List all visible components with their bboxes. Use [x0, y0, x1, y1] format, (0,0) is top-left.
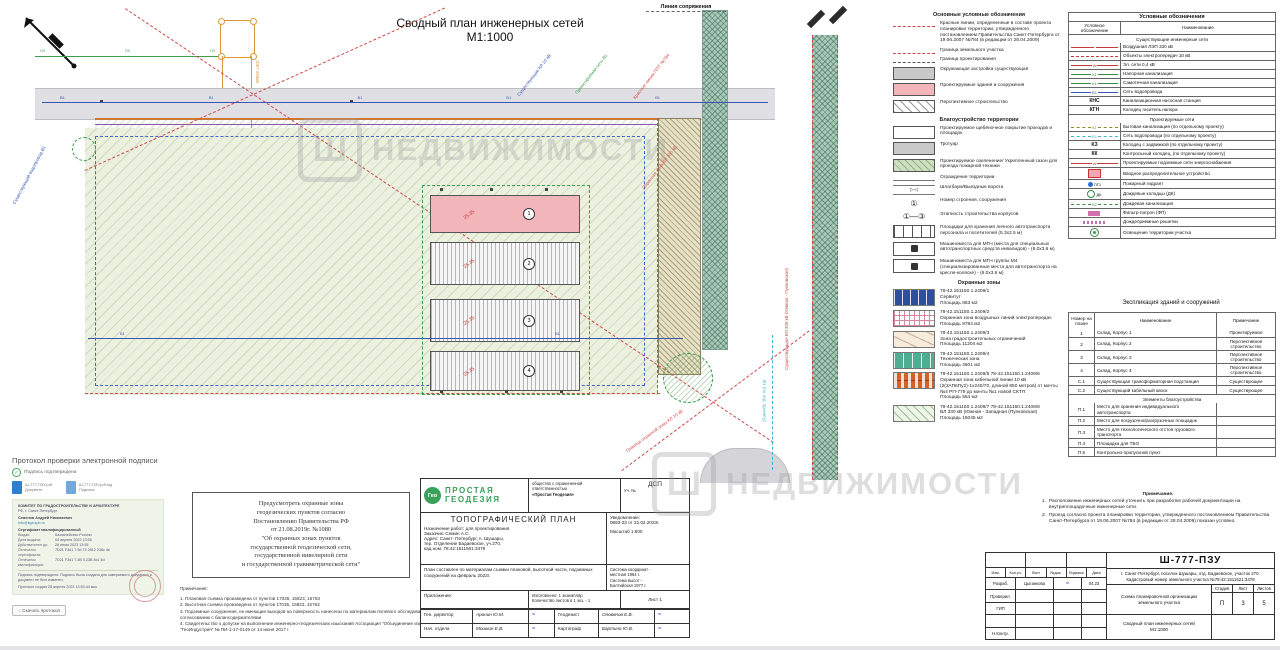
legend-swatch-icon [893, 100, 935, 113]
symbols-row: В1 Сеть водопровода [1069, 87, 1275, 96]
legend-item-label: Перспективное строительство [940, 100, 1065, 106]
symbols-section: Существующие инженерные сети [1069, 35, 1275, 43]
legend-item-label: Проектируемые здания и сооружения [940, 83, 1065, 89]
utility-marker-icon [440, 188, 443, 191]
signature-row: Нач. отдела Мошкин Е.В. ≈ Картограф Барт… [421, 623, 689, 637]
survey-notes: Примечания: 1. Плановая съемка произведе… [180, 586, 448, 633]
mid-water-line [88, 338, 683, 339]
red-line-vertical [657, 118, 658, 393]
symbols-row: Воздушная ЛЭП 330 кВ [1069, 43, 1275, 51]
signature-mark [1054, 603, 1082, 614]
powerline-corridor-strip [812, 35, 838, 480]
symbols-row: КНС Канализационная насосная станция [1069, 96, 1275, 105]
building-elevation-label: 25.35 [462, 258, 476, 270]
zone-swatch-icon [893, 289, 935, 306]
survey-note: 4. Свидетельство о допуске на выполнение… [180, 621, 448, 633]
legend-item: Красные линии, определенные в составе пр… [893, 21, 1065, 44]
cert-fields: Выдан: Казначейство России Дата выдачи: … [18, 533, 158, 568]
symbol-name: Самотечная канализация [1121, 79, 1275, 87]
download-icon: ↓ [18, 608, 20, 613]
utility-marker-icon [505, 390, 508, 393]
legend-zone-item: 78-42.151150.1.2409/4 Техническая зона П… [893, 352, 1065, 369]
symbols-row: КГН Колодец гаситель напора [1069, 105, 1275, 114]
company-org: общество с ограниченной ответственностью… [529, 479, 621, 512]
symbol-swatch-icon: В1 [1069, 132, 1121, 140]
name [1016, 590, 1054, 601]
signature-mark [1054, 628, 1082, 639]
row-note: Существующее [1217, 377, 1275, 385]
legend-swatch-icon [893, 83, 935, 96]
topo-block: ТОПОГРАФИЧЕСКИЙ ПЛАН Назначение работ: д… [421, 513, 607, 564]
symbol-swatch-icon [1069, 227, 1121, 238]
symbol-name: Бытовая канализация (по отдельному проек… [1121, 123, 1275, 131]
zone-label: 78-42.151150.1.2409/1 Сервитут Площадь 8… [940, 289, 1065, 306]
explication-row: П.3 Место для технологического отстоя гр… [1069, 425, 1275, 439]
line-label: В1 [358, 95, 363, 100]
explication-row: С.1 Существующая трансформаторная подста… [1069, 376, 1275, 385]
legend-item: Машиноместа для МГН группы М4 (специализ… [893, 259, 1065, 276]
building-footprint: 2 25.35 [430, 242, 580, 285]
sheet-label: Лист [1233, 585, 1254, 592]
symbol-name: Фильтр-патрон (ФП) [1121, 209, 1275, 217]
symbols-rows-projected: К1 Бытовая канализация (по отдельному пр… [1069, 123, 1275, 238]
revision-row: ГИП [986, 603, 1106, 615]
dsp-cell: ДСП Уч. № [621, 479, 689, 512]
right-notes: Примечание. 1. Расположение инженерных с… [1042, 492, 1274, 526]
zone-area: Площадь 11204 м2 [940, 342, 1065, 348]
symbol-name: Канализационная насосная станция [1121, 97, 1275, 105]
building-elevation-label: 25.35 [462, 209, 476, 221]
zone-label: 78-42.151150.1.2409/5 78-42.151150.1.240… [940, 372, 1065, 401]
certificate-box: КОМИТЕТ ПО ГРАДОСТРОИТЕЛЬСТВУ И АРХИТЕКТ… [12, 499, 164, 595]
esign-status-text: Подпись подтверждена [24, 470, 76, 475]
file-chip[interactable]: Ш-777-ПЗУ.pdfДокумент [12, 481, 52, 494]
survey-note: 3. Подземные сооружения, не имеющие выхо… [180, 609, 448, 621]
explication-row: П.5 Контрольно-пропускной пункт [1069, 447, 1275, 456]
legend-item: Проектируемое щебёночное покрытие проезд… [893, 126, 1065, 139]
round-stamp [129, 570, 161, 602]
stage-value: П [1212, 593, 1233, 614]
row-number: П.1 [1069, 403, 1095, 416]
revision-row: Разраб. Цыганкова ≈ 04.23 [986, 578, 1106, 590]
document-file-icon [12, 481, 22, 494]
date [1082, 628, 1106, 639]
zone-label: 78-42.151150.1.2409/7 78-42.151150.1.240… [940, 405, 1065, 422]
symbol-name: Дождевые колодцы (ДК) [1121, 189, 1275, 199]
title-block: Изм.Кол.уч.Лист№док.ПодписьДата Разраб. … [985, 552, 1275, 640]
line-label: В1 [120, 331, 125, 336]
survey-stamp: Гео ПРОСТАЯГЕОДЕЗИЯ общество с ограничен… [420, 478, 690, 638]
legend-item: Машиноместа для МГН (места для специальн… [893, 242, 1065, 256]
stage-table: Стадия Лист Листов П 3 5 [1212, 585, 1274, 614]
building-elevation-label: 25.35 [462, 366, 476, 378]
row-name: Место для хранения индивидуального автот… [1095, 403, 1217, 416]
cert-field-key: Отпечаток квалификации: [18, 558, 52, 568]
signature-row: Ген. директор Аронин Ю.М. ≈ Геодезист Ол… [421, 609, 689, 623]
legend-item-label: Ограждение территории [940, 175, 1065, 181]
power-pylon [220, 20, 255, 58]
symbols-row: КЗ Колодец с задвижкой (по отдельному пр… [1069, 140, 1275, 149]
symbol-swatch-icon: К1 [1069, 123, 1121, 131]
row-number: 4 [1069, 364, 1095, 376]
row-number: 1 [1069, 329, 1095, 337]
symbol-name: Объекты электропередач 10 кВ [1121, 52, 1275, 60]
cert-field: Отпечаток квалификации: 7D21 F3d1 7.4B 0… [18, 558, 158, 568]
signature-mark: ≈ [529, 624, 555, 637]
line-label: ЛЗ [210, 48, 215, 53]
legend-item-label: Окружающая застройка существующая [940, 67, 1065, 73]
signatures: Ген. директор Аронин Ю.М. ≈ Геодезист Ол… [421, 609, 689, 637]
projected-water-line [772, 335, 773, 470]
sheets-label: Листов [1254, 585, 1274, 592]
explication-title: Экспликация зданий и сооружений [1068, 300, 1274, 306]
row-note: Перспективное строительство [1217, 338, 1275, 350]
role: Проверил. [986, 590, 1016, 601]
mid-line-labels: В1В1 [120, 331, 560, 336]
row-note: Перспективное строительство [1217, 364, 1275, 376]
explication-row: П.4 Площадка для ТБО [1069, 438, 1275, 447]
role: ГИП [986, 603, 1016, 614]
revision-col-label: Подпись [1067, 568, 1087, 577]
legend-item-label: Граница земельного участка [940, 48, 1065, 54]
water-line-labels: В1В1В1В1В1 [60, 95, 660, 100]
symbols-row: КК Контрольный колодец, (по отдельному п… [1069, 149, 1275, 158]
legend-swatch-icon [893, 26, 935, 27]
symbol-name: Сеть водопровода [1121, 88, 1275, 96]
signature-mark [1054, 615, 1082, 626]
zone-swatch-icon [893, 310, 935, 327]
row-note: Существующее [1217, 386, 1275, 394]
symbol-swatch-icon: КЗ [1069, 141, 1121, 149]
zone-swatch-icon [893, 352, 935, 369]
symbol-name: Воздушная ЛЭП 330 кВ [1121, 43, 1275, 51]
topo-title: ТОПОГРАФИЧЕСКИЙ ПЛАН [424, 515, 603, 524]
file-chip[interactable]: Ш-777-ПЗУ.pdf.sigПодпись [66, 481, 112, 494]
explication-row: 4 Склад, Корпус 4 Перспективное строител… [1069, 363, 1275, 376]
revision-row: Проверил. [986, 590, 1106, 602]
utility-marker-icon [560, 390, 563, 393]
row-name: Контрольно-пропускной пункт [1095, 448, 1217, 456]
building-number-badge: 2 [523, 258, 535, 270]
customer-address: Адрес: Санкт- Петербург, п. Шушары, тер.… [424, 536, 603, 551]
symbol-name: Напорная канализация [1121, 70, 1275, 78]
explication-col-num: Номер на плане [1069, 313, 1095, 329]
signature-mark: ≈ [655, 610, 689, 623]
building: 4 25.35 [430, 351, 580, 391]
role [986, 615, 1016, 626]
explication-row: 2 Склад, Корпус 2 Перспективное строител… [1069, 337, 1275, 350]
legend-item-label: Граница проектирования [940, 57, 1065, 63]
row-note: Перспективное строительство [1217, 351, 1275, 363]
check-icon: ✓ [12, 468, 21, 477]
notice: Уведомление: 0893-23 от 22.02.2023г. [610, 515, 686, 525]
explication-rows: П.1 Место для хранения индивидуального а… [1069, 403, 1275, 456]
symbol-name: Вводное распределительное устройство [1121, 168, 1275, 179]
zone-label: 78-42.151150.1.2409/3 Зона градостроител… [940, 331, 1065, 348]
revision-grid: Изм.Кол.уч.Лист№док.ПодписьДата Разраб. … [986, 553, 1107, 639]
zone-area: Площадь 4601 м2 [940, 363, 1065, 369]
stage-label: Стадия [1212, 585, 1233, 592]
symbols-row: К1 Самотечная канализация [1069, 78, 1275, 87]
coordinate-system: Система координат - местная 1964 г. Сист… [607, 565, 689, 590]
row-note [1217, 426, 1275, 439]
line-label: В1 [60, 95, 65, 100]
line-label: В1 [655, 95, 660, 100]
symbol-swatch-icon [1069, 209, 1121, 217]
legend-item: Перспективное строительство [893, 100, 1065, 113]
building: 2 25.35 [430, 242, 580, 285]
explication-row: С.2 Существующий кабельный киоск Существ… [1069, 385, 1275, 394]
legend-swatch-icon [893, 142, 935, 155]
row-number: П.2 [1069, 417, 1095, 425]
road-turnaround [700, 448, 790, 483]
road [35, 88, 775, 120]
legend-item-label: Проектируемое щебёночное покрытие проезд… [940, 126, 1065, 138]
symbols-row: В1 Сеть водопровода (по отдельному проек… [1069, 131, 1275, 140]
zone-swatch-icon [893, 405, 935, 422]
legend-zone-item: 78-42.151150.1.2409/2 Охранная зона возд… [893, 310, 1065, 327]
symbols-table-title: Условные обозначения [1069, 13, 1275, 21]
row-name: Место для технологического отстоя грузов… [1095, 426, 1217, 439]
symbol-name: Эл. сети 0,4 кВ [1121, 61, 1275, 69]
symbols-row: Вводное распределительное устройство [1069, 167, 1275, 179]
cert-field-value: 7D21 F3d1 7.4B 0.23B 8c1 4d [55, 558, 105, 568]
revision-col-label: Кол.уч. [1006, 568, 1026, 577]
name [1016, 603, 1054, 614]
utility-marker-icon [440, 390, 443, 393]
symbol-swatch-icon: В1 [1069, 88, 1121, 96]
symbol-swatch-icon: ПГ1 [1069, 180, 1121, 188]
explication-col-note: Примечание [1217, 313, 1275, 329]
esign-panel: Протокол проверки электронной подписи ✓ … [12, 456, 184, 640]
symbol-swatch-icon [1069, 52, 1121, 60]
legend-item-label: Машиноместа для МГН (места для специальн… [940, 242, 1065, 254]
symbol-name: Колодец гаситель напора [1121, 106, 1275, 114]
zone-swatch-icon [893, 331, 935, 348]
geodesic-protection-note: Предусмотреть охранные зоны геодезически… [192, 492, 410, 578]
name: Цыганкова [1016, 578, 1054, 589]
legend-item-label: Машиноместа для МГН группы М4 (специализ… [940, 259, 1065, 276]
symbols-row: ПГ1 Пожарный гидрант [1069, 179, 1275, 188]
name [1016, 615, 1054, 626]
symbol-swatch-icon [1069, 218, 1121, 226]
row-name: Существующий кабельный киоск [1095, 386, 1217, 394]
water-line [42, 102, 768, 103]
attachment: Приложение: [421, 591, 529, 608]
zone-area: Площадь 8784 м2 [940, 322, 1065, 328]
legend-item: Проектируемые здания и сооружения [893, 83, 1065, 96]
sheet-value: 3 [1233, 593, 1254, 614]
symbol-swatch-icon: К1 [1069, 70, 1121, 78]
utility-marker-icon [545, 188, 548, 191]
legend-item: Граница земельного участка [893, 48, 1065, 54]
legend-item-label: Шлагбаум/Выездные ворота [940, 185, 1065, 191]
building-number-badge: 3 [523, 315, 535, 327]
row-note [1217, 403, 1275, 416]
row-name: Склад, Корпус 2 [1095, 338, 1217, 350]
esign-status: ✓ Подпись подтверждена [12, 468, 184, 477]
building-footprint: 4 25.35 [430, 351, 580, 391]
legend-item: Ограждение территории [893, 175, 1065, 181]
note-text: Проезд согласно проекта планировки терри… [1049, 513, 1274, 525]
symbol-swatch-icon: КНС [1069, 97, 1121, 105]
line-label: В1 [555, 331, 560, 336]
legend-item: Площадки для хранения личного автотрансп… [893, 225, 1065, 238]
row-name: Склад, Корпус 4 [1095, 364, 1217, 376]
composed-note: План составлен по материалам съемки план… [421, 565, 607, 590]
row-note [1217, 439, 1275, 447]
building: 1 25.35 [430, 195, 580, 233]
symbol-swatch-icon: ДК [1069, 189, 1121, 199]
symbol-name: Пожарный гидрант [1121, 180, 1275, 188]
name [1016, 628, 1054, 639]
symbols-row: К1 Бытовая канализация (по отдельному пр… [1069, 123, 1275, 131]
copies-made: Изготовлено: 1 экземпляр Количество лист… [529, 591, 621, 608]
sheet-title: Сводный план инженерных сетей М1:1000 [1107, 615, 1212, 639]
connection-strip [702, 10, 728, 350]
note-item: 1. Расположение инженерных сетей уточнит… [1042, 499, 1274, 511]
symbol-name: Дождеприемные решетки [1121, 218, 1275, 226]
power-line-label: ЛЭП 330кВ [255, 60, 260, 83]
revision-col-label: Изм. [986, 568, 1006, 577]
notice-block: Уведомление: 0893-23 от 22.02.2023г. Мас… [607, 513, 689, 564]
explication-row: П.1 Место для хранения индивидуального а… [1069, 403, 1275, 416]
legend-item: Окружающая застройка существующая [893, 67, 1065, 80]
signature-mark: ≈ [529, 610, 555, 623]
esign-title: Протокол проверки электронной подписи [12, 456, 184, 465]
zone-area: Площадь 16045 м2 [940, 416, 1065, 422]
explication-row: П.2 Место для погрузочно/разгрузочных пл… [1069, 416, 1275, 425]
legend-item-label: Проектируемое озеленение/ Укрепленный га… [940, 159, 1065, 171]
row-note: Проектируемое [1217, 329, 1275, 337]
row-name: Существующая трансформаторная подстанция [1095, 377, 1217, 385]
legend-item-label: Этапность строительства корпусов [940, 212, 1065, 218]
revision-col-label: №док. [1047, 568, 1067, 577]
notes-heading: Примечание. [1042, 492, 1274, 498]
row-name: Площадка для ТБО [1095, 439, 1217, 447]
legend-swatch-icon [893, 53, 935, 54]
legend-swatch-icon [893, 180, 935, 181]
legend-item: Проектируемое озеленение/ Укрепленный га… [893, 159, 1065, 172]
symbols-row: К1 Напорная канализация [1069, 69, 1275, 78]
symbols-row: Дождеприемные решетки [1069, 217, 1275, 226]
plan-title: Сводный план инженерных сетей М1:1000 [300, 16, 680, 44]
symbol-name: Дождевая канализация [1121, 200, 1275, 208]
legend-title: Основные условные обозначения [893, 12, 1065, 18]
legend-swatch-icon: ▷◁ [893, 185, 935, 195]
symbol-name: Проектируемые подземные сети энергоснабж… [1121, 159, 1275, 167]
callout-label: Существующий водопровод В1 [12, 145, 47, 205]
explication-section: Элементы благоустройства [1069, 395, 1275, 403]
strip-label-chip [807, 10, 825, 28]
symbol-swatch-icon: W [1069, 159, 1121, 167]
legend-swatch-icon [893, 259, 935, 273]
symbol-swatch-icon: КГН [1069, 106, 1121, 114]
symbols-row: W Эл. сети 0,4 кВ [1069, 60, 1275, 69]
revision-row: Н.Контр. [986, 628, 1106, 639]
row-note [1217, 448, 1275, 456]
cert-field-value: 7D21 F3d1 7.5d 73 2812 238c 4e [55, 548, 110, 558]
line-label: В1 [506, 95, 511, 100]
symbol-swatch-icon: К2 [1069, 200, 1121, 208]
plan-title-line2: М1:1000 [300, 30, 680, 44]
download-protocol-button[interactable]: ↓ Скачать протокол [12, 605, 66, 616]
note-text: Расположение инженерных сетей уточнить п… [1049, 499, 1274, 511]
legend-item-label: Тротуар [940, 142, 1065, 148]
row-number: 3 [1069, 351, 1095, 363]
row-number: С.1 [1069, 377, 1095, 385]
role: Разраб. [986, 578, 1016, 589]
buildings-group: 1 25.35 2 25.35 3 25.35 4 25.35 [430, 195, 580, 395]
symbol-name: Контрольный колодец, (по отдельному прое… [1121, 150, 1275, 158]
cert-email: info@kga.spb.ru [18, 521, 158, 526]
revision-col-label: Дата [1087, 568, 1106, 577]
building-number-badge: 1 [523, 208, 535, 220]
zone-area: Площадь 863 м2 [940, 301, 1065, 307]
legend-swatch-icon [893, 159, 935, 172]
legend-zone-item: 78-42.151150.1.2409/7 78-42.151150.1.240… [893, 405, 1065, 422]
row-name: Склад, Корпус 3 [1095, 351, 1217, 363]
scale: Масштаб 1:500 [610, 529, 686, 534]
symbol-swatch-icon: W [1069, 61, 1121, 69]
line-label: ЛЗ [40, 48, 45, 53]
plan-title-line1: Сводный план инженерных сетей [300, 16, 680, 30]
symbol-swatch-icon [1069, 168, 1121, 179]
legend-subtitle: Благоустройство территории [893, 117, 1065, 123]
symbols-row: К2 Дождевая канализация [1069, 199, 1275, 208]
symbols-row: W Проектируемые подземные сети энергосна… [1069, 158, 1275, 167]
legend-item: ① Номер строения, сооружения [893, 198, 1065, 208]
survey-point-circle [72, 137, 96, 161]
callout-label: Существующая ВЛ 330 кВ (Южная - Пулковск… [784, 240, 789, 370]
legend-swatch-icon: ① [893, 198, 935, 208]
signature-mark [1054, 590, 1082, 601]
row-name: Склад, Корпус 1 [1095, 329, 1217, 337]
legend-items: Проектируемое щебёночное покрытие проезд… [893, 126, 1065, 277]
row-number: П.4 [1069, 439, 1095, 447]
symbols-section: Проектируемые сети [1069, 115, 1275, 123]
symbols-row: Фильтр-патрон (ФП) [1069, 208, 1275, 217]
signature-mark: ≈ [1054, 578, 1082, 589]
building-elevation-label: 25.35 [462, 315, 476, 327]
zone-name: Охранная зона кабельной линии 10 кВ (2(3… [940, 378, 1065, 395]
survey-point-circle [663, 353, 713, 403]
explication-rows: 1 Склад, Корпус 1 Проектируемое 2 Склад,… [1069, 329, 1275, 394]
line-label: ЛЗ [125, 48, 130, 53]
sheet-number: Лист 1 [621, 591, 689, 608]
cert-location: РФ, г. Санкт-Петербург [18, 509, 158, 514]
logo-badge: Гео [424, 487, 441, 504]
legend-zones: 78-42.151150.1.2409/1 Сервитут Площадь 8… [893, 289, 1065, 422]
legend-subtitle: Охранные зоны [893, 280, 1065, 286]
legend-swatch-icon [893, 225, 935, 238]
signature-file-icon [66, 481, 76, 494]
zone-label: 78-42.151150.1.2409/2 Охранная зона возд… [940, 310, 1065, 327]
symbols-row: Объекты электропередач 10 кВ [1069, 51, 1275, 60]
site-address: г. Санкт-Петербург, поселок Шушары, отд.… [1107, 569, 1274, 585]
legend-item: Граница проектирования [893, 57, 1065, 63]
legend-zone-item: 78-42.151150.1.2409/1 Сервитут Площадь 8… [893, 289, 1065, 306]
cert-field-key: Отпечаток сертификата: [18, 548, 52, 558]
zone-area: Площадь 554 м2 [940, 395, 1065, 401]
date: 04.23 [1082, 578, 1106, 589]
gas-line [35, 56, 221, 57]
legend-items: Красные линии, определенные в составе пр… [893, 21, 1065, 113]
symbol-name: Освещение территории участка [1121, 227, 1275, 238]
date [1082, 603, 1106, 614]
revision-col-label: Лист [1026, 568, 1046, 577]
cert-field: Отпечаток сертификата: 7D21 F3d1 7.5d 73… [18, 548, 158, 558]
